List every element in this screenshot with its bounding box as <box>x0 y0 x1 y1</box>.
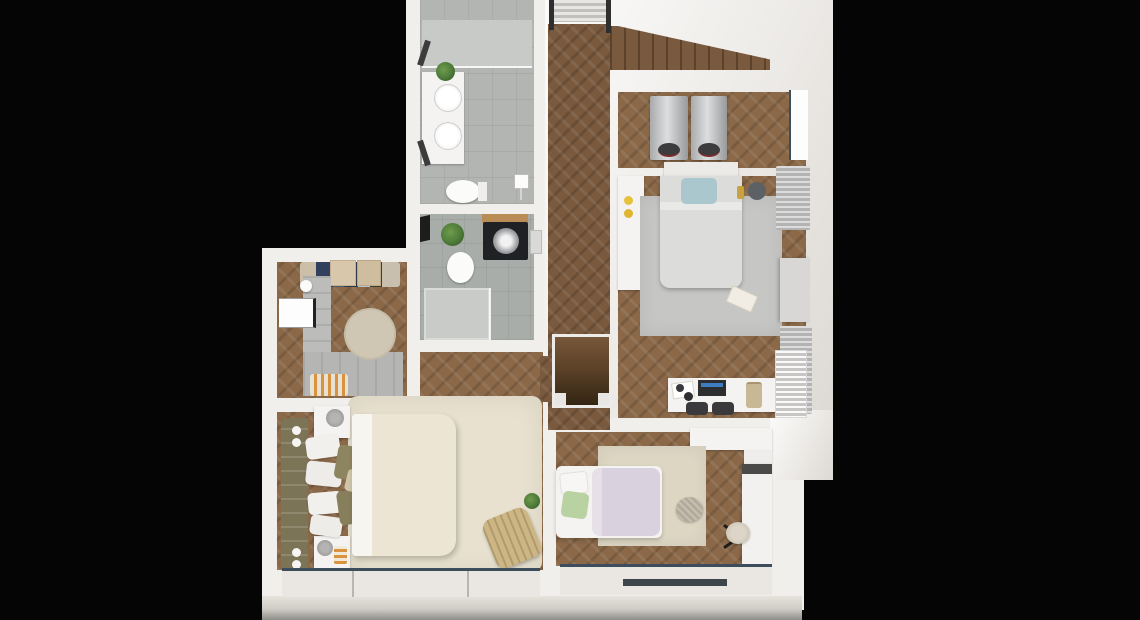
kids-cabinet-side <box>744 450 772 464</box>
kids-chair <box>726 522 750 544</box>
kids-duvet-fold <box>592 468 602 536</box>
bathroom-toilet-tank <box>478 182 487 201</box>
window-mullion-2 <box>467 571 469 597</box>
closet-window <box>279 298 316 328</box>
radiator-top-bedroom <box>775 350 807 418</box>
window-mullion-1 <box>352 571 354 597</box>
appliance-1 <box>650 96 688 160</box>
bathroom-plant <box>436 62 455 81</box>
storage-box-2 <box>357 260 381 286</box>
kids-bed <box>556 466 662 538</box>
wc-shower-tray <box>424 288 490 340</box>
entry-door-post-right <box>606 0 611 33</box>
sconce-bottom-1 <box>292 548 301 557</box>
bed-main-fold <box>352 414 372 556</box>
kids-desk-edge <box>742 464 772 474</box>
light-switch <box>514 174 529 189</box>
entry-door-mat <box>554 0 606 22</box>
stool-2 <box>712 402 734 415</box>
window-sill-main <box>282 568 540 597</box>
stool-1 <box>686 402 708 415</box>
gold-decor <box>737 186 744 199</box>
bathroom-toilet <box>446 180 480 203</box>
knitted-pouf <box>676 497 703 522</box>
wc-plant <box>441 223 464 246</box>
shower-area <box>422 20 532 68</box>
appliance-1-door <box>658 143 680 157</box>
stairwell-down <box>552 334 612 408</box>
sink-left <box>434 84 462 112</box>
bed-main <box>352 414 456 556</box>
bed-top-right <box>660 176 742 288</box>
laptop-screen <box>701 383 723 387</box>
appliance-2-door <box>698 143 720 157</box>
wc-slit-window <box>420 215 430 242</box>
hanging-bag <box>746 382 762 408</box>
sink-right <box>434 122 462 150</box>
sconce-top-2 <box>292 438 301 447</box>
kids-desk <box>742 464 772 564</box>
lamp-bottom <box>317 540 333 556</box>
main-bedroom-plant <box>524 493 540 509</box>
round-rug <box>344 308 396 360</box>
striped-bench <box>310 374 348 396</box>
washing-machine <box>483 222 528 260</box>
corner-wall <box>770 410 833 480</box>
exterior-apron <box>262 596 802 620</box>
floor-plan-render <box>0 0 1140 620</box>
storage-box-1 <box>330 260 356 286</box>
closet-lamp <box>300 280 312 292</box>
bed-tr-headboard <box>664 162 738 177</box>
curtain-upper <box>776 166 810 230</box>
wc-toilet <box>447 252 474 283</box>
light-switch-cord <box>520 188 522 200</box>
yellow-decor-1 <box>624 196 633 205</box>
desk-decor-1 <box>676 384 684 392</box>
desk-decor-2 <box>684 392 693 401</box>
tv-panel <box>780 258 810 322</box>
washer-drum <box>493 228 519 254</box>
sconce-top-1 <box>292 426 301 435</box>
striped-candle <box>334 546 347 564</box>
wc-shower-glass <box>489 288 491 340</box>
laptop <box>698 380 726 396</box>
window-sill-kids <box>560 564 772 595</box>
yellow-decor-2 <box>624 209 633 218</box>
kids-window-track <box>623 579 727 586</box>
kids-duvet <box>592 468 660 536</box>
wc-hand-basin <box>530 230 542 254</box>
storage-window <box>789 90 808 160</box>
stair-step-right <box>598 393 609 405</box>
blue-pillow <box>681 178 717 204</box>
appliance-2 <box>691 96 727 160</box>
kids-pillow-green <box>560 490 589 519</box>
stair-step-left <box>555 393 566 405</box>
lamp-top <box>326 409 344 427</box>
dark-pouf <box>748 182 766 200</box>
pillow-white-4 <box>309 514 343 538</box>
